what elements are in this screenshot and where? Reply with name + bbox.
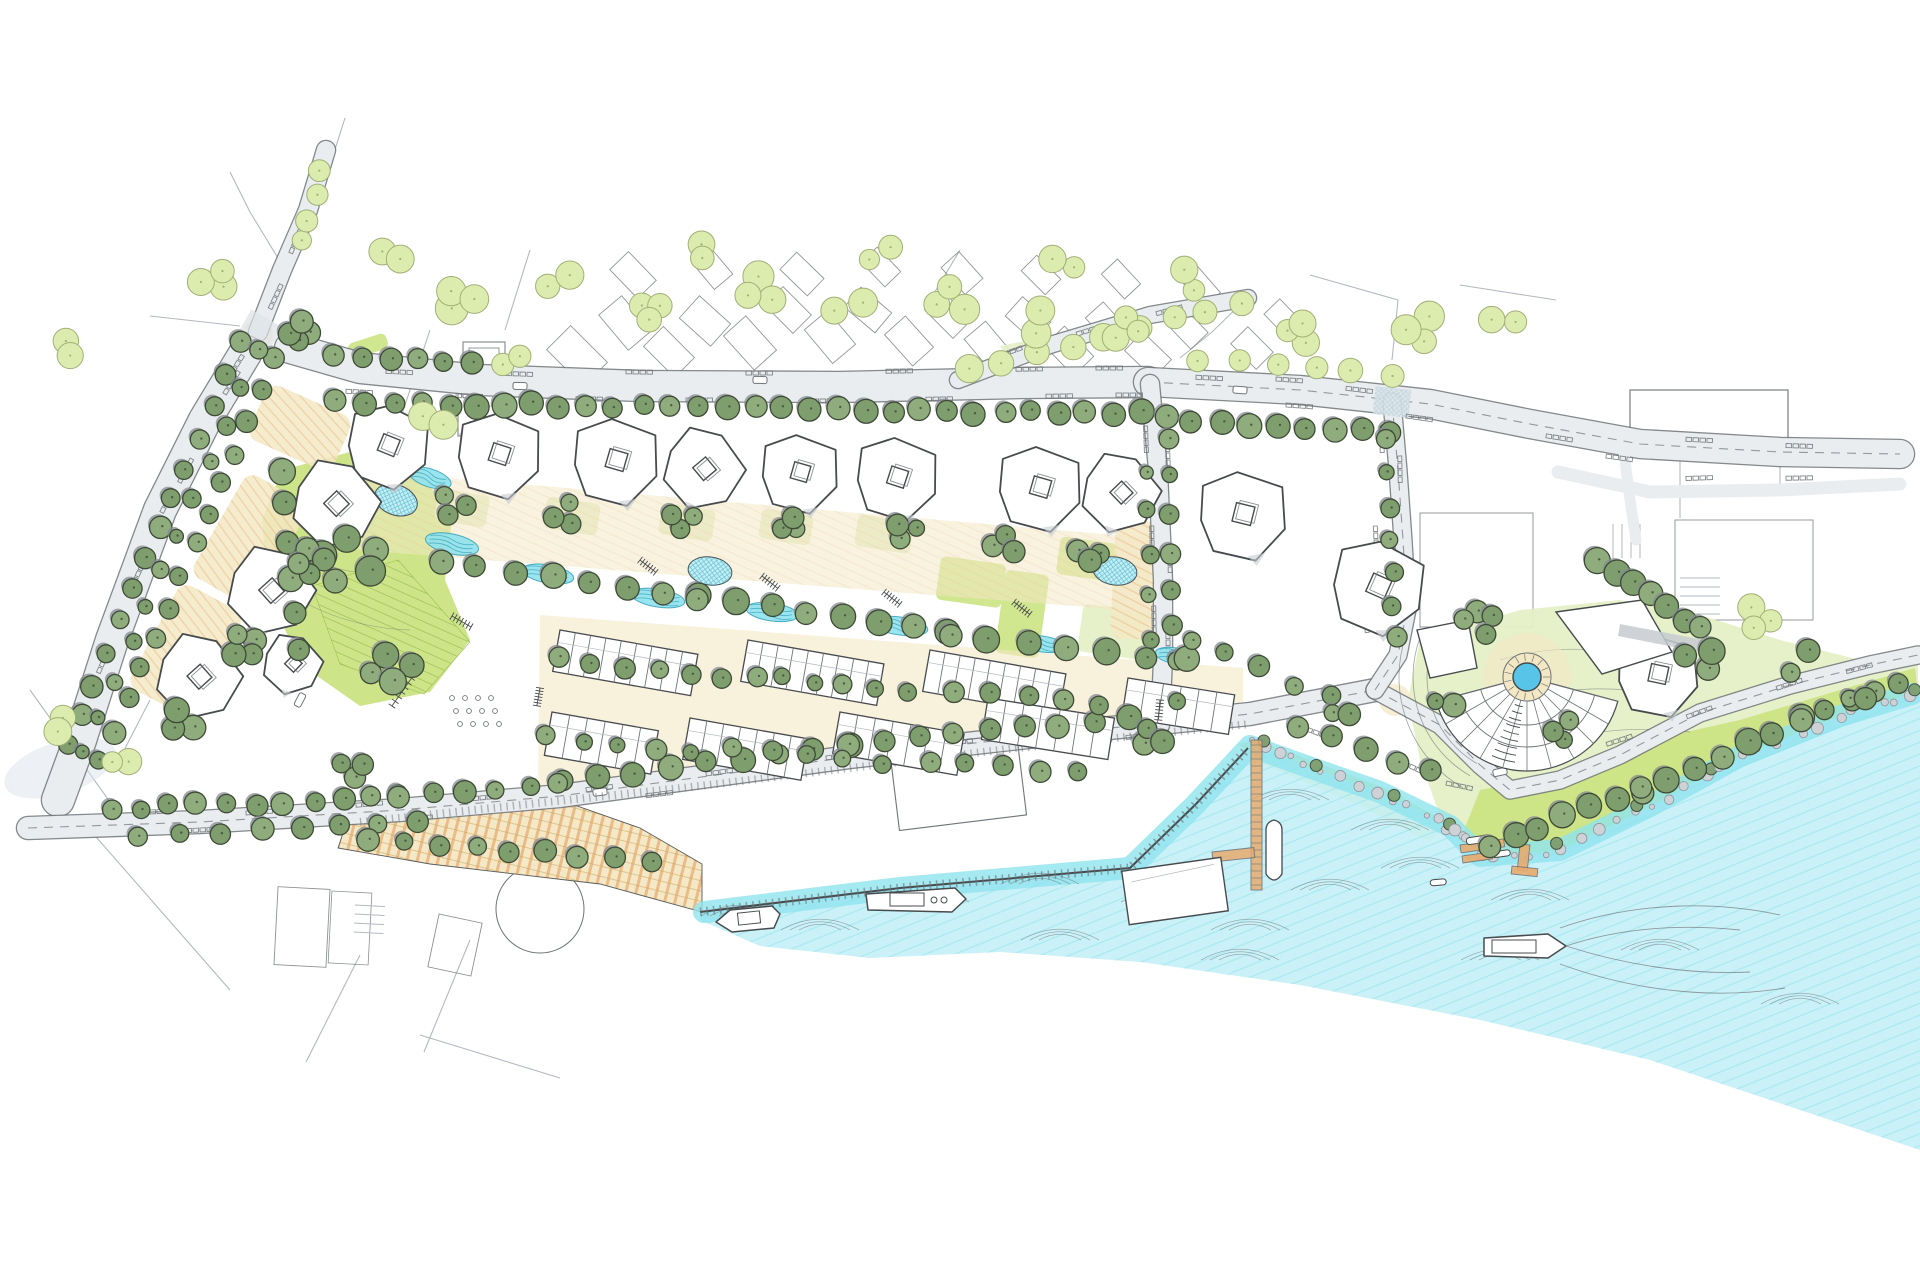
masterplan-drawing — [0, 0, 1920, 1277]
masterplan-canvas — [0, 0, 1920, 1277]
